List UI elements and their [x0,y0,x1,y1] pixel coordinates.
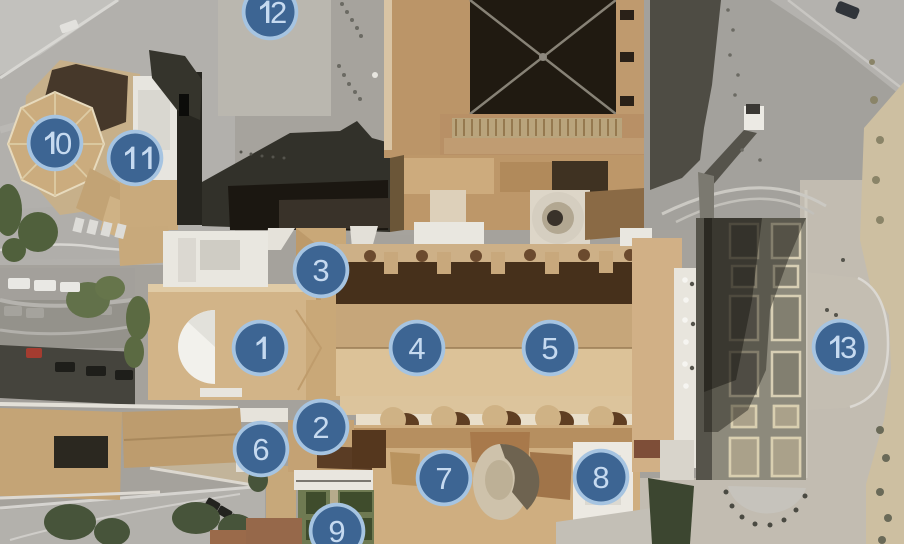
svg-text:5: 5 [541,331,558,366]
svg-text:7: 7 [435,461,452,496]
svg-text:6: 6 [252,432,269,467]
svg-text:2: 2 [312,410,329,445]
svg-text:2: 2 [270,0,287,30]
svg-text:8: 8 [592,460,609,495]
svg-text:0: 0 [55,126,72,161]
svg-text:4: 4 [408,331,425,366]
svg-text:3: 3 [312,253,329,288]
svg-text:3: 3 [840,330,857,365]
svg-text:9: 9 [328,514,345,544]
